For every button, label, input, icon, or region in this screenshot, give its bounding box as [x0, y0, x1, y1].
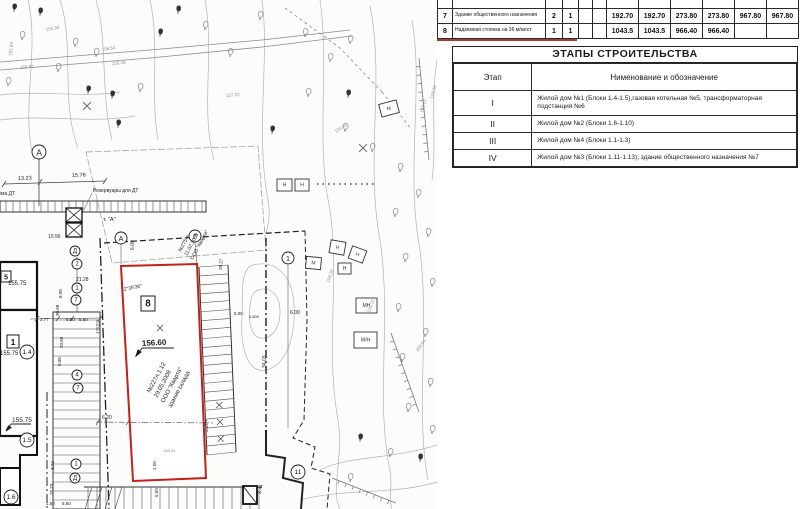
shed: Н [329, 240, 346, 255]
legend-cell: 1 [563, 0, 579, 9]
shed: Н [295, 179, 309, 191]
map-label: 15.76 [72, 173, 86, 179]
map-label: приёма ДТ [0, 191, 15, 197]
stage-description: Жилой дом №1 (Блоки 1.4-1.5),газовая кот… [532, 91, 797, 116]
map-label: 10.56 [48, 234, 61, 240]
map-label: 156.60 [142, 338, 167, 348]
stage-description: Жилой дом №4 (Блоки 1.1-1.3) [532, 133, 797, 150]
site-plan-screenshot: ННММНННМНМ/Н 518 ААГД217471Д1111.41.51.6… [0, 0, 800, 509]
legend-cell [593, 9, 607, 24]
stages-title: ЭТАПЫ СТРОИТЕЛЬСТВА [453, 47, 797, 63]
legend-cell: 1 [563, 9, 579, 24]
map-label: 20.60 [59, 336, 64, 348]
legend-cell [703, 0, 735, 9]
axis-marker-label: А [36, 148, 42, 158]
legend-row-6: 6Надз. площадка (суд)1184.6084.60 [438, 0, 799, 9]
legend-desc-cell: Надз. площадка (суд) [453, 0, 546, 9]
stages-table: Этап Нименование и обозначение IЖилой до… [453, 63, 797, 167]
axis-marker-label: 11 [295, 469, 302, 476]
map-label: 5.50 [154, 488, 159, 497]
stages-table-wrap: ЭТАПЫ СТРОИТЕЛЬСТВА Этап Нименование и о… [452, 46, 798, 168]
map-label: 3.72 [50, 461, 55, 470]
map-label: 5.50 [62, 501, 71, 506]
stage-number: IV [454, 150, 532, 167]
map-label: 6.00 [66, 317, 75, 322]
legend-desc-cell: Здание общественного назначения [453, 9, 546, 24]
map-label: 28.27 [218, 258, 224, 270]
legend-cell: 966.40 [671, 24, 703, 39]
map-label: 158.94 [163, 448, 176, 453]
shed-label: М [311, 260, 316, 266]
axis-marker-label: 1.4 [22, 349, 32, 356]
axis-marker-label: 1.5 [22, 437, 32, 444]
map-label: 6.20 [102, 415, 112, 421]
map-label: т. "А" [103, 217, 116, 223]
legend-cell: 966.40 [703, 24, 735, 39]
shed-label: Н [300, 183, 304, 189]
map-label: 6.00 [130, 240, 136, 250]
shed: М [306, 256, 322, 269]
fuel-tanks [66, 208, 82, 237]
shed-label: Н [283, 183, 287, 189]
stage-number: I [454, 91, 532, 116]
legend-cell [671, 0, 703, 9]
axis-marker-label: Д [73, 476, 77, 482]
legend-cell: 273.80 [671, 9, 703, 24]
map-label: 0.38 [57, 357, 62, 366]
legend-cell: 1 [546, 0, 563, 9]
legend-cell: 1 [563, 24, 579, 39]
legend-cell [579, 24, 593, 39]
legend-cell: 84.60 [607, 0, 639, 9]
legend-table-wrap: 6Надз. площадка (суд)1184.6084.607Здание… [437, 0, 799, 39]
map-label: 1.50 [46, 501, 55, 506]
legend-cell: 1043.5 [639, 24, 671, 39]
stage-row-IV: IVЖилой дом №3 (Блоки 1.11-1.13), здание… [454, 150, 797, 167]
map-label: 6.00 [234, 311, 243, 316]
legend-row-8: 8Надземная стоянка на 36 м/мест111043.51… [438, 24, 799, 39]
legend-cell: 967.80 [767, 9, 799, 24]
legend-cell: 1 [546, 24, 563, 39]
map-label: 155.75 [12, 417, 32, 424]
map-label: 21.28 [76, 277, 89, 283]
axis-marker-label: А [119, 234, 124, 243]
stages-header-row: Этап Нименование и обозначение [454, 64, 797, 91]
legend-cell [735, 24, 767, 39]
stage-row-II: IIЖилой дом №2 (Блоки 1.6-1.10) [454, 116, 797, 133]
legend-cell: 192.70 [639, 9, 671, 24]
map-label: 1.50 [152, 461, 157, 470]
map-label: 155.75 [8, 281, 27, 287]
stages-header-desc: Нименование и обозначение [532, 64, 797, 91]
legend-cell: 2 [546, 9, 563, 24]
map-label: 30.68 [55, 304, 60, 316]
map-label: 155.75 [0, 351, 19, 357]
number-box-label: 8 [145, 299, 151, 310]
legend-cell [579, 9, 593, 24]
stage-number: III [454, 133, 532, 150]
legend-cell: 7 [438, 9, 453, 24]
legend-cell [593, 0, 607, 9]
legend-cell: 6 [438, 0, 453, 9]
legend-cell: 967.80 [735, 9, 767, 24]
map-label: 6.00 [290, 310, 300, 316]
map-label: 15.23 [49, 483, 54, 495]
legend-cell [593, 24, 607, 39]
legend-cell: 8 [438, 24, 453, 39]
stage-row-III: IIIЖилой дом №4 (Блоки 1.1-1.3) [454, 133, 797, 150]
legend-cell [735, 0, 767, 9]
map-label: 5.50 [79, 317, 88, 322]
map-label: 0.600 [249, 314, 260, 319]
axis-marker-label: 1.6 [6, 494, 16, 501]
shed: Н [338, 263, 351, 274]
legend-cell [579, 0, 593, 9]
site-plan-map: ННММНННМНМ/Н 518 ААГД217471Д1111.41.51.6… [0, 0, 437, 509]
stage-row-I: IЖилой дом №1 (Блоки 1.4-1.5),газовая ко… [454, 91, 797, 116]
axis-marker-label: Д [73, 249, 77, 255]
legend-cell: 273.80 [703, 9, 735, 24]
legend-cell: 1043.5 [607, 24, 639, 39]
map-label: 3.77 [40, 317, 49, 322]
number-box-label: 1 [11, 337, 16, 347]
axis-marker-label: 1 [286, 254, 290, 263]
map-paper [0, 0, 437, 509]
stage-description: Жилой дом №3 (Блоки 1.11-1.13), здание о… [532, 150, 797, 167]
map-label: 34.03 [262, 355, 268, 368]
legend-cell: 84.60 [639, 0, 671, 9]
legend-cell: 192.70 [607, 9, 639, 24]
stages-header-stage: Этап [454, 64, 532, 91]
stage-number: II [454, 116, 532, 133]
shed-label: М/Н [361, 338, 371, 344]
shed-label: Н [343, 266, 347, 272]
row-highlight-underline [437, 39, 577, 42]
shed: Н [277, 179, 292, 191]
map-label: 1°6'23" [95, 319, 101, 334]
map-label: 8.00 [58, 289, 63, 298]
map-label: Резервуары для ДТ [93, 188, 139, 194]
legend-desc-cell: Надземная стоянка на 36 м/мест [453, 24, 546, 39]
legend-table: 6Надз. площадка (суд)1184.6084.607Здание… [437, 0, 799, 39]
map-label: 13.23 [18, 176, 32, 182]
legend-cell [767, 0, 799, 9]
stage-description: Жилой дом №2 (Блоки 1.6-1.10) [532, 116, 797, 133]
legend-cell [767, 24, 799, 39]
shed: М/Н [354, 332, 377, 348]
legend-row-7: 7Здание общественного назначения21192.70… [438, 9, 799, 24]
